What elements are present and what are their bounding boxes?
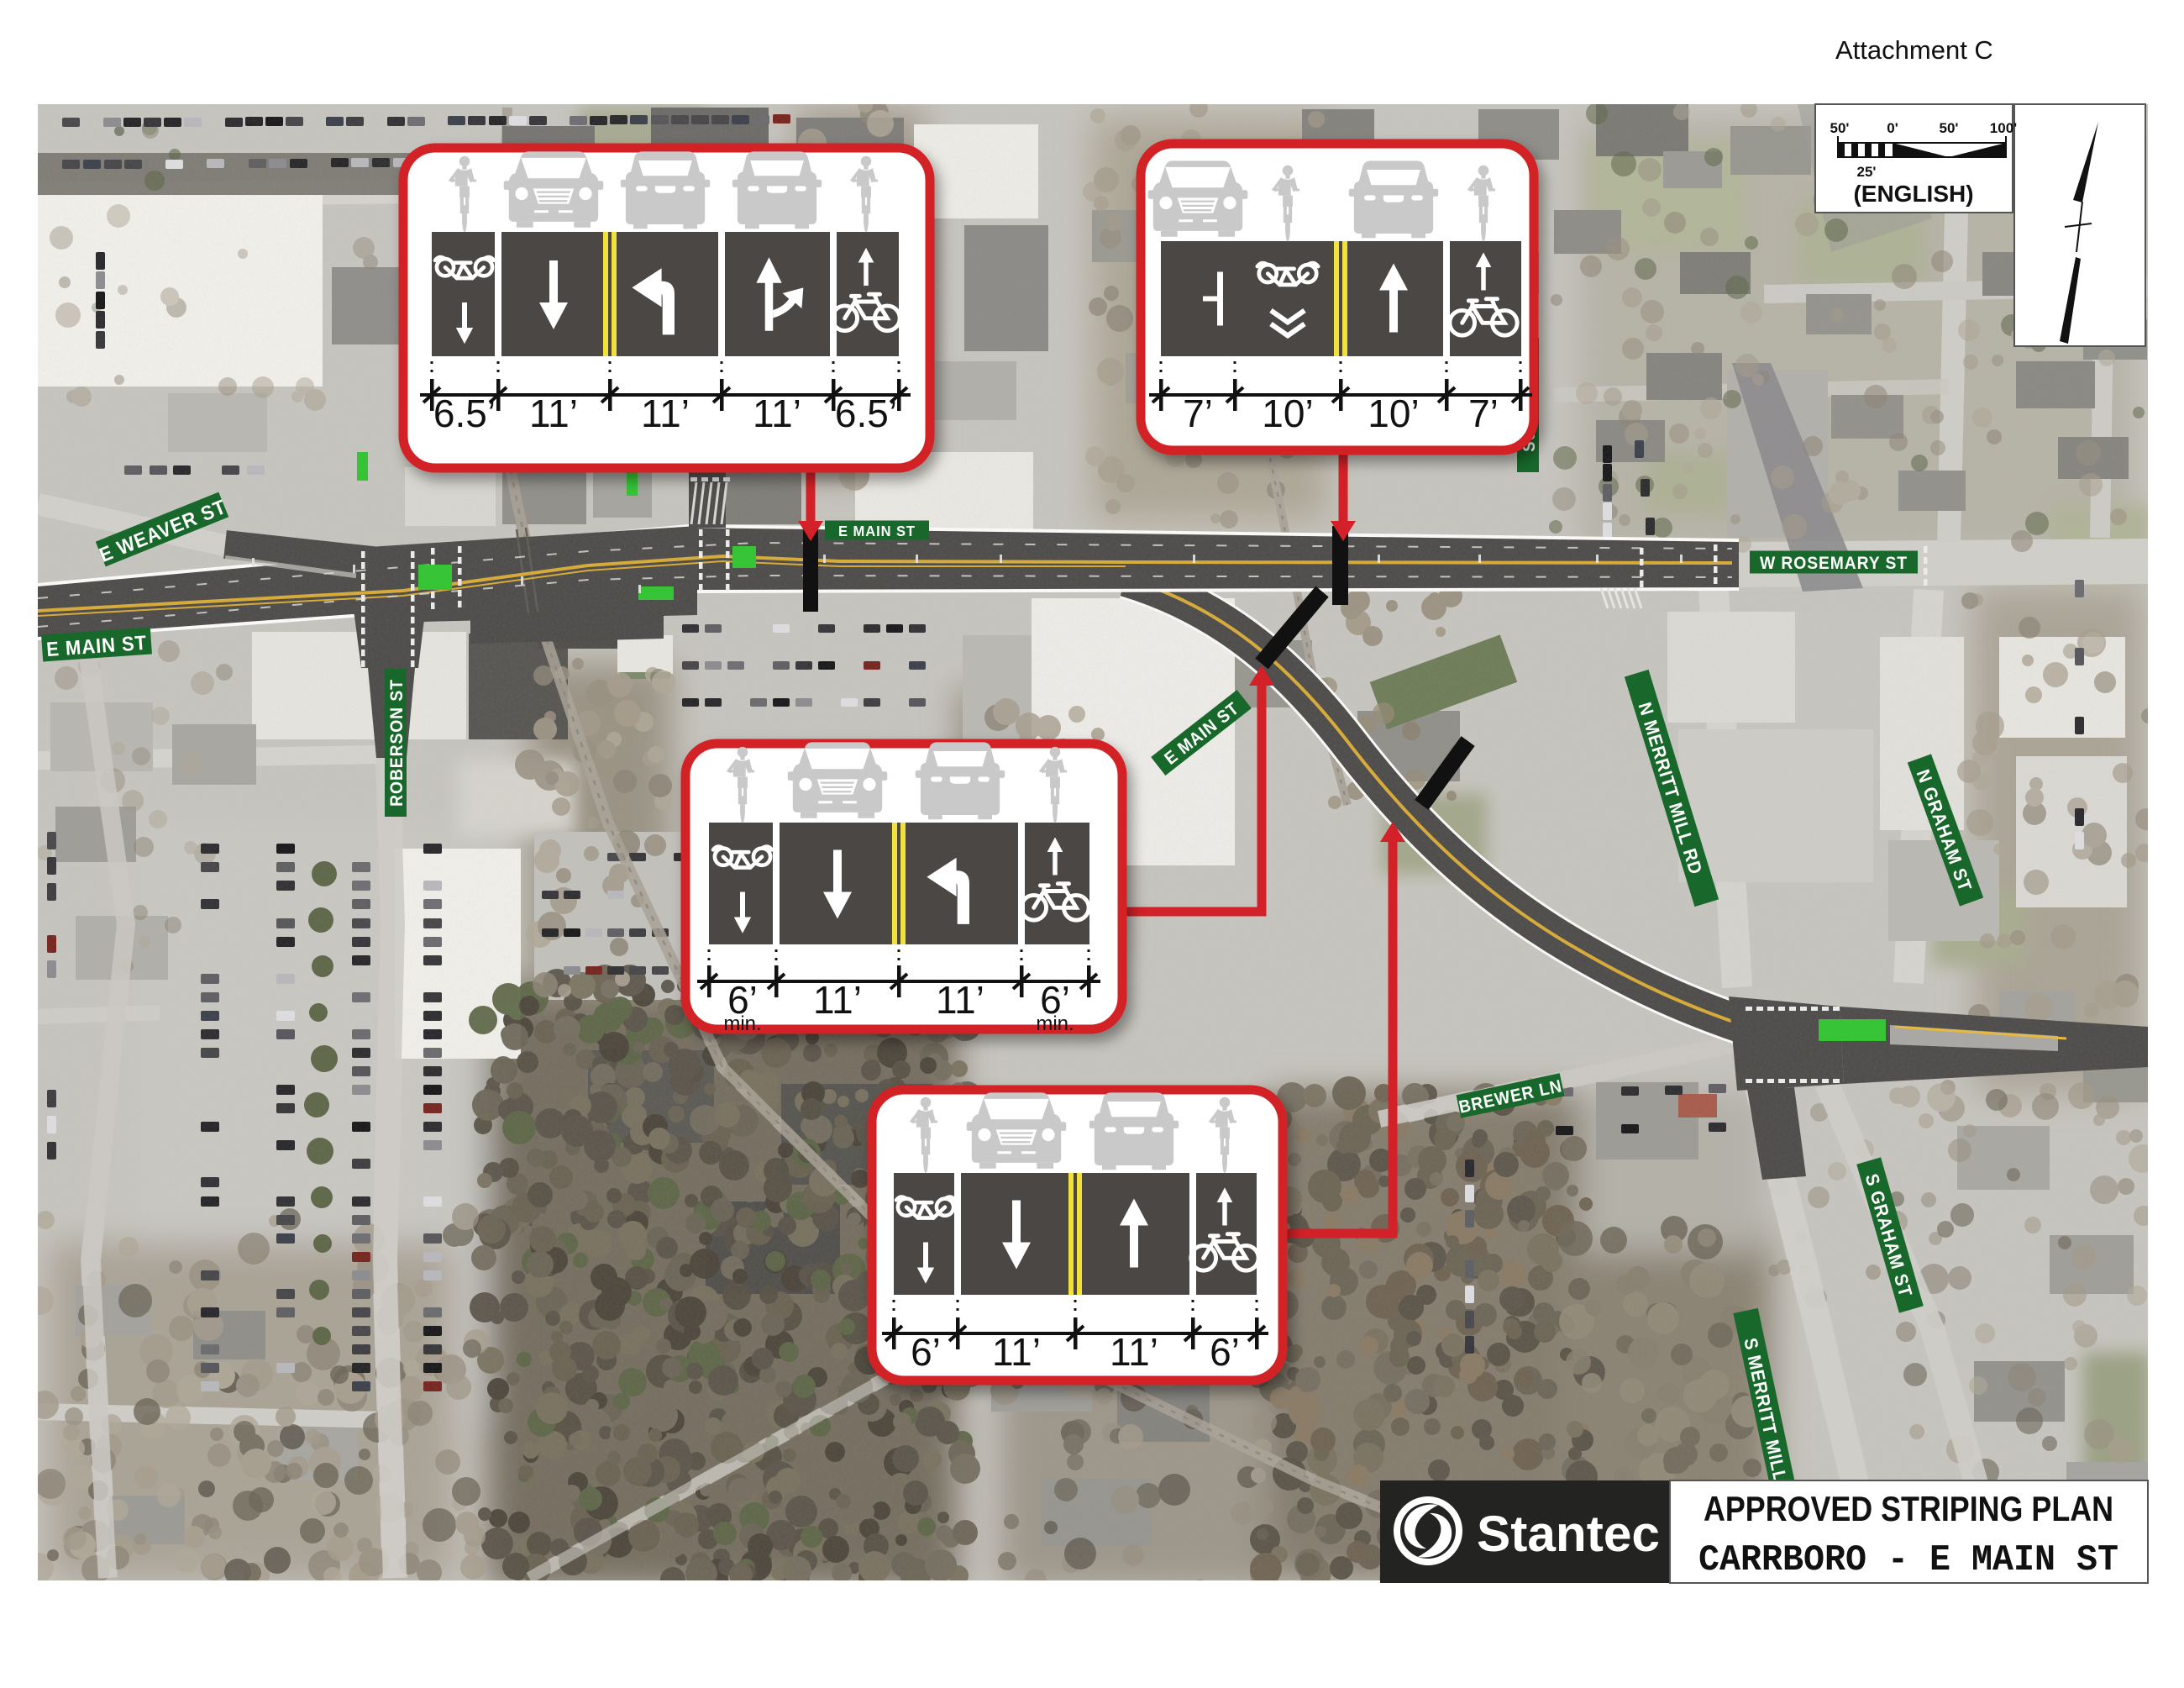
svg-text:0': 0' [1887,120,1898,136]
svg-text:ROBERSON ST: ROBERSON ST [387,679,407,807]
svg-text:Attachment C: Attachment C [1835,35,1993,65]
svg-text:CARRBORO - E MAIN ST: CARRBORO - E MAIN ST [1698,1539,2118,1581]
svg-text:E MAIN ST: E MAIN ST [838,522,916,539]
svg-text:11’: 11’ [992,1330,1041,1374]
svg-text:6.5’: 6.5’ [433,392,496,435]
svg-text:10’: 10’ [1262,392,1313,435]
svg-text:11’: 11’ [641,392,690,435]
svg-text:11’: 11’ [529,392,578,435]
svg-text:6’: 6’ [911,1330,941,1374]
svg-text:7’: 7’ [1468,392,1499,435]
svg-text:min.: min. [723,1012,761,1035]
svg-text:11’: 11’ [813,978,862,1022]
svg-text:100': 100' [1990,120,2017,136]
svg-text:25': 25' [1857,164,1877,180]
svg-text:7’: 7’ [1183,392,1213,435]
svg-text:11’: 11’ [936,978,984,1022]
svg-text:W ROSEMARY ST: W ROSEMARY ST [1760,554,1908,573]
svg-text:11’: 11’ [753,392,801,435]
svg-text:6’: 6’ [1210,1330,1240,1374]
svg-text:Stantec: Stantec [1477,1506,1660,1562]
svg-text:6.5’: 6.5’ [835,392,897,435]
svg-text:APPROVED STRIPING PLAN: APPROVED STRIPING PLAN [1704,1489,2113,1528]
svg-text:10’: 10’ [1368,392,1419,435]
svg-text:(ENGLISH): (ENGLISH) [1853,181,1973,207]
svg-text:50': 50' [1830,120,1850,136]
svg-text:50': 50' [1940,120,1959,136]
svg-text:min.: min. [1036,1012,1074,1035]
svg-text:11’: 11’ [1110,1330,1158,1374]
